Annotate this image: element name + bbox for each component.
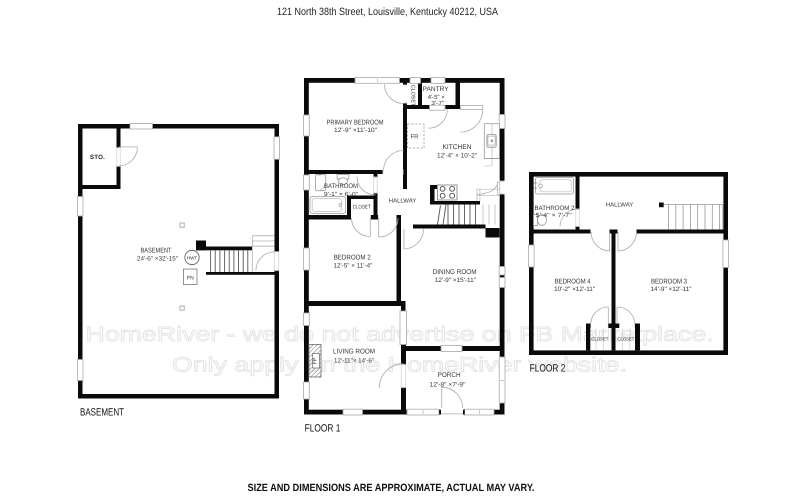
svg-text:3'-7": 3'-7": [431, 100, 444, 107]
svg-text:FN: FN: [187, 275, 194, 281]
svg-text:BEDROOM 2: BEDROOM 2: [334, 255, 371, 262]
svg-text:FLOOR 1: FLOOR 1: [305, 423, 341, 435]
svg-text:HALLWAY: HALLWAY: [606, 201, 634, 208]
svg-text:DINING ROOM: DINING ROOM: [433, 269, 477, 276]
svg-text:BATHROOM: BATHROOM: [324, 183, 358, 190]
svg-text:FR: FR: [411, 133, 420, 140]
svg-text:10'-2" ×12'-11": 10'-2" ×12'-11": [554, 286, 595, 293]
svg-text:CLOSET: CLOSET: [353, 204, 372, 210]
svg-text:KITCHEN: KITCHEN: [443, 144, 472, 151]
svg-text:BEDROOM 3: BEDROOM 3: [651, 279, 687, 286]
svg-text:12'-5" × 11'-4": 12'-5" × 11'-4": [333, 262, 372, 269]
svg-text:12'-8" ×7'-9": 12'-8" ×7'-9": [430, 382, 466, 389]
svg-text:BASEMENT: BASEMENT: [80, 407, 124, 419]
svg-text:SIZE AND DIMENSIONS ARE APPROX: SIZE AND DIMENSIONS ARE APPROXIMATE, ACT…: [248, 482, 535, 494]
svg-text:CLOSET: CLOSET: [409, 85, 415, 107]
svg-text:BASEMENT: BASEMENT: [141, 247, 173, 254]
svg-text:24'-6" ×32'-15": 24'-6" ×32'-15": [137, 255, 178, 262]
svg-text:4'-5" ×: 4'-5" ×: [428, 94, 445, 101]
svg-text:STO.: STO.: [90, 154, 105, 161]
svg-text:5'-4" × 7'-7": 5'-4" × 7'-7": [536, 212, 572, 219]
svg-text:PORCH: PORCH: [438, 372, 461, 379]
svg-text:FP: FP: [312, 357, 318, 364]
svg-text:PANTRY: PANTRY: [423, 86, 450, 93]
svg-text:PRIMARY BEDROOM: PRIMARY BEDROOM: [327, 119, 384, 126]
svg-text:12'-4" × 10'-2": 12'-4" × 10'-2": [437, 152, 477, 159]
svg-text:BATHROOM 2: BATHROOM 2: [535, 205, 575, 212]
svg-text:LIVING ROOM: LIVING ROOM: [333, 349, 375, 356]
svg-text:121 North 38th Street, Louisvi: 121 North 38th Street, Louisville, Kentu…: [277, 6, 498, 18]
svg-text:FLOOR 2: FLOOR 2: [530, 363, 566, 375]
svg-text:12'-11"× 14'-6": 12'-11"× 14'-6": [334, 358, 374, 365]
svg-text:12'-9" ×11'-10": 12'-9" ×11'-10": [334, 127, 377, 134]
svg-text:14'-9" ×12'-11": 14'-9" ×12'-11": [651, 286, 692, 293]
svg-text:HALLWAY: HALLWAY: [389, 198, 417, 205]
svg-text:CLOSET: CLOSET: [591, 336, 608, 341]
svg-text:12'-9" ×15'-11": 12'-9" ×15'-11": [435, 277, 476, 284]
svg-text:CLOSET: CLOSET: [617, 336, 634, 341]
svg-text:BEDROOM 4: BEDROOM 4: [555, 279, 591, 286]
svg-text:HWT: HWT: [187, 256, 198, 261]
svg-text:9'-1" × 6'-0": 9'-1" × 6'-0": [324, 191, 358, 198]
